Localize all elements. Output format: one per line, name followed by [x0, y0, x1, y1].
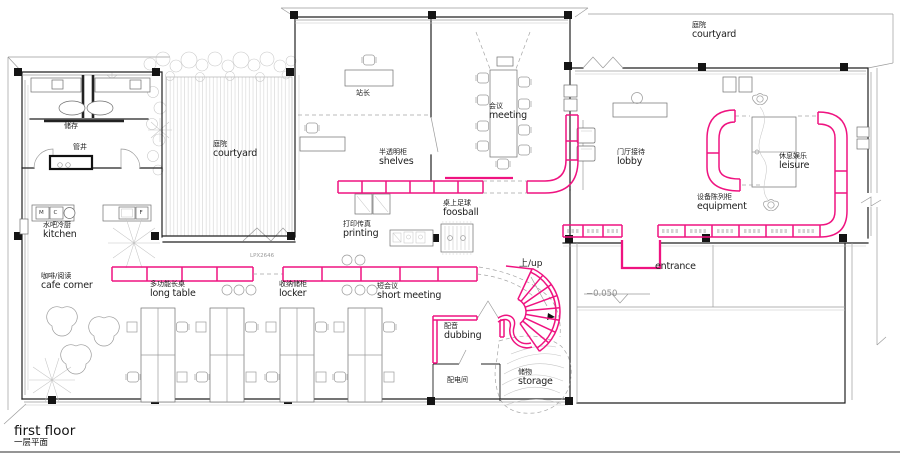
locker-run — [283, 267, 477, 281]
label-cafe-corner: 咖啡/阅读cafe corner — [41, 273, 93, 291]
label-pipe-shaft: 管井 — [73, 144, 87, 152]
desk-group — [126, 308, 189, 402]
printer-station — [390, 230, 433, 246]
equipment-curve-right — [818, 112, 847, 237]
label-storage-closet: 储存 — [64, 123, 78, 131]
palm-tree — [108, 218, 160, 268]
palm-tree — [29, 358, 75, 402]
label-appliance-c: C — [54, 210, 58, 216]
label-appliance-m: M — [39, 210, 44, 216]
desk-group — [265, 308, 328, 402]
leisure-curve-left — [707, 110, 740, 191]
person-figure — [753, 94, 768, 105]
label-stair-storage: 储物storage — [518, 369, 553, 387]
label-door-code: LPX2646 — [250, 243, 274, 261]
long-table-run — [112, 267, 253, 281]
label-courtyard-east: 庭院courtyard — [692, 22, 736, 40]
drawing-title: first floor 一层平面 — [14, 424, 75, 449]
label-electrical-room: 配电间 — [447, 377, 468, 385]
label-dubbing: 配音dubbing — [444, 323, 481, 341]
title-en: first floor — [14, 424, 75, 439]
shelves-run — [338, 181, 545, 193]
furniture — [20, 55, 869, 413]
label-kitchen: 水吧冷厨kitchen — [43, 222, 77, 240]
label-level: −0.050 — [586, 282, 617, 300]
label-foosball: 桌上足球foosball — [443, 200, 478, 218]
plan-linework — [0, 0, 900, 454]
label-leisure: 休息娱乐leisure — [779, 153, 809, 171]
desk-group — [333, 308, 396, 402]
foosball-table — [441, 222, 473, 254]
label-short-meeting: 短会议short meeting — [377, 283, 441, 301]
label-appliance-f: F — [140, 210, 143, 216]
desk-group — [195, 308, 258, 402]
floor-plan-canvas: 储存 管井 庭院courtyard 庭院courtyard 站长 会议meeti… — [0, 0, 900, 454]
label-lobby: 门厅接待lobby — [617, 149, 645, 167]
person-figure — [764, 200, 779, 211]
label-equipment: 设备陈列柜equipment — [697, 194, 747, 212]
pipe-shaft-box — [50, 156, 92, 169]
label-courtyard-west: 庭院courtyard — [213, 141, 257, 159]
reception-counter — [613, 103, 667, 117]
label-entrance: entrance — [655, 262, 696, 273]
label-locker: 收纳储柜locker — [279, 281, 307, 299]
dubbing-door-leaf — [477, 301, 499, 319]
label-shelves: 半透明柜shelves — [379, 149, 413, 167]
label-long-table: 多功能长桌long table — [150, 281, 196, 299]
label-meeting: 会议meeting — [489, 103, 527, 121]
title-cn: 一层平面 — [14, 439, 75, 449]
label-printing: 打印传真printing — [343, 221, 378, 239]
label-up: 上/up — [519, 259, 542, 269]
lobby-shelf — [545, 115, 578, 193]
label-station-master: 站长 — [356, 90, 370, 98]
